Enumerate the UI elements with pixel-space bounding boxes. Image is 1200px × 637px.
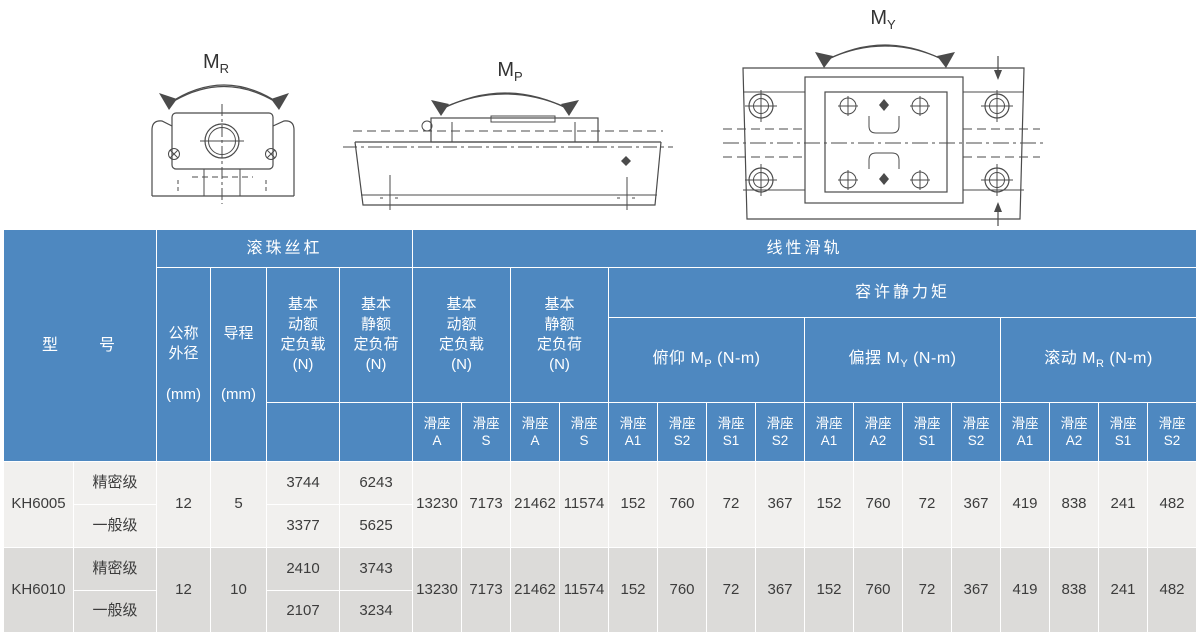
roll-arc-arrow xyxy=(168,85,280,104)
header-slider-s2: 滑座 S2 xyxy=(756,403,804,461)
cell-lead: 5 xyxy=(211,462,266,547)
cell-value: 838 xyxy=(1050,548,1098,632)
header-slider-a1: 滑座 A1 xyxy=(805,403,853,461)
header-slider-s: 滑座 S xyxy=(560,403,608,461)
header-slider-s1: 滑座 S1 xyxy=(1099,403,1147,461)
cell-value: 419 xyxy=(1001,462,1049,547)
header-slider-a2: 滑座 A2 xyxy=(1050,403,1098,461)
cell-value: 13230 xyxy=(413,548,461,632)
cell-value: 72 xyxy=(707,548,755,632)
rail-hole-icon xyxy=(745,164,777,196)
cell-grade: 精密级 xyxy=(74,548,156,590)
cell-value: 7173 xyxy=(462,548,510,632)
cell-screw-stat: 5625 xyxy=(340,505,412,547)
header-slider-a1: 滑座 A1 xyxy=(609,403,657,461)
cell-value: 11574 xyxy=(560,462,608,547)
cell-screw-dyn: 2410 xyxy=(267,548,339,590)
pitch-moment-diagram: MP xyxy=(343,52,673,217)
cell-value: 482 xyxy=(1148,548,1196,632)
header-yaw-moment: 偏摆 MY (N-m) xyxy=(805,318,1000,402)
header-slider-s2: 滑座 S2 xyxy=(658,403,706,461)
header-model: 型 号 xyxy=(4,230,156,461)
cell-screw-dyn: 2107 xyxy=(267,591,339,632)
header-slider-a: 滑座 A xyxy=(511,403,559,461)
cell-value: 72 xyxy=(903,462,951,547)
cell-value: 21462 xyxy=(511,548,559,632)
rail-hole-icon xyxy=(981,90,1013,122)
header-slider-s2: 滑座 S2 xyxy=(952,403,1000,461)
cell-value: 152 xyxy=(609,462,657,547)
cell-model: KH6010 xyxy=(4,548,73,632)
cell-value: 241 xyxy=(1099,548,1147,632)
header-roll-moment: 滚动 MR (N-m) xyxy=(1001,318,1196,402)
cell-od: 12 xyxy=(157,462,210,547)
cell-value: 760 xyxy=(854,548,902,632)
cell-value: 21462 xyxy=(511,462,559,547)
header-nominal-od: 公称 外径 (mm) xyxy=(157,268,210,461)
cell-value: 419 xyxy=(1001,548,1049,632)
cell-value: 367 xyxy=(756,548,804,632)
cell-value: 152 xyxy=(805,548,853,632)
rail-hole-icon xyxy=(981,164,1013,196)
cell-grade: 精密级 xyxy=(74,462,156,504)
cell-lead: 10 xyxy=(211,548,266,632)
spec-table: 型 号 滚珠丝杠 线性滑轨 公称 外径 (mm) 导程 (mm) 基本 动额 定… xyxy=(4,230,1196,632)
header-static-moment: 容许静力矩 xyxy=(609,268,1196,317)
cell-value: 760 xyxy=(658,548,706,632)
header-screw-static-load: 基本 静额 定负荷 (N) xyxy=(340,268,412,402)
datum-diamond-icon xyxy=(879,173,889,185)
cell-screw-stat: 3234 xyxy=(340,591,412,632)
header-slider-a2: 滑座 A2 xyxy=(854,403,902,461)
cell-value: 13230 xyxy=(413,462,461,547)
cell-model: KH6005 xyxy=(4,462,73,547)
cell-value: 152 xyxy=(609,548,657,632)
cell-value: 241 xyxy=(1099,462,1147,547)
header-guide-static-load: 基本 静额 定负荷 (N) xyxy=(511,268,608,402)
cell-screw-stat: 6243 xyxy=(340,462,412,504)
header-ball-screw: 滚珠丝杠 xyxy=(157,230,412,267)
pitch-moment-drawing: MP xyxy=(343,52,673,217)
cell-value: 760 xyxy=(658,462,706,547)
header-slider-s: 滑座 S xyxy=(462,403,510,461)
header-linear-guide: 线性滑轨 xyxy=(413,230,1196,267)
roll-moment-label: MR xyxy=(203,51,229,76)
header-screw-dynamic-load: 基本 动额 定负载 (N) xyxy=(267,268,339,402)
rail-hole-icon xyxy=(745,90,777,122)
lube-tab xyxy=(869,116,899,133)
header-pitch-moment: 俯仰 MP (N-m) xyxy=(609,318,804,402)
roll-moment-drawing: MR xyxy=(148,44,300,209)
empty-cell xyxy=(267,403,339,461)
header-slider-a1: 滑座 A1 xyxy=(1001,403,1049,461)
yaw-moment-drawing: MY xyxy=(723,2,1043,228)
cell-value: 7173 xyxy=(462,462,510,547)
header-lead: 导程 (mm) xyxy=(211,268,266,461)
cell-screw-dyn: 3744 xyxy=(267,462,339,504)
rail-shoulder xyxy=(152,121,172,196)
header-guide-dynamic-load: 基本 动额 定负载 (N) xyxy=(413,268,510,402)
cell-value: 11574 xyxy=(560,548,608,632)
pitch-moment-label: MP xyxy=(497,59,522,84)
datum-diamond-icon xyxy=(879,99,889,111)
lube-tab xyxy=(869,153,899,169)
cell-od: 12 xyxy=(157,548,210,632)
cell-value: 367 xyxy=(756,462,804,547)
header-slider-s2: 滑座 S2 xyxy=(1148,403,1196,461)
yaw-moment-diagram: MY xyxy=(723,2,1043,228)
height-arrow-icon xyxy=(994,56,1002,226)
yaw-moment-label: MY xyxy=(870,7,896,32)
cell-value: 72 xyxy=(707,462,755,547)
header-slider-a: 滑座 A xyxy=(413,403,461,461)
cell-value: 72 xyxy=(903,548,951,632)
cell-value: 838 xyxy=(1050,462,1098,547)
cell-value: 760 xyxy=(854,462,902,547)
cell-value: 482 xyxy=(1148,462,1196,547)
cell-screw-dyn: 3377 xyxy=(267,505,339,547)
empty-cell xyxy=(340,403,412,461)
cell-screw-stat: 3743 xyxy=(340,548,412,590)
datum-diamond-icon xyxy=(621,156,631,166)
cell-value: 367 xyxy=(952,548,1000,632)
cell-grade: 一般级 xyxy=(74,505,156,547)
roll-moment-diagram: MR xyxy=(148,44,300,209)
header-slider-s1: 滑座 S1 xyxy=(707,403,755,461)
cell-grade: 一般级 xyxy=(74,591,156,632)
cell-value: 152 xyxy=(805,462,853,547)
rail-body xyxy=(355,142,661,205)
header-slider-s1: 滑座 S1 xyxy=(903,403,951,461)
cell-value: 367 xyxy=(952,462,1000,547)
